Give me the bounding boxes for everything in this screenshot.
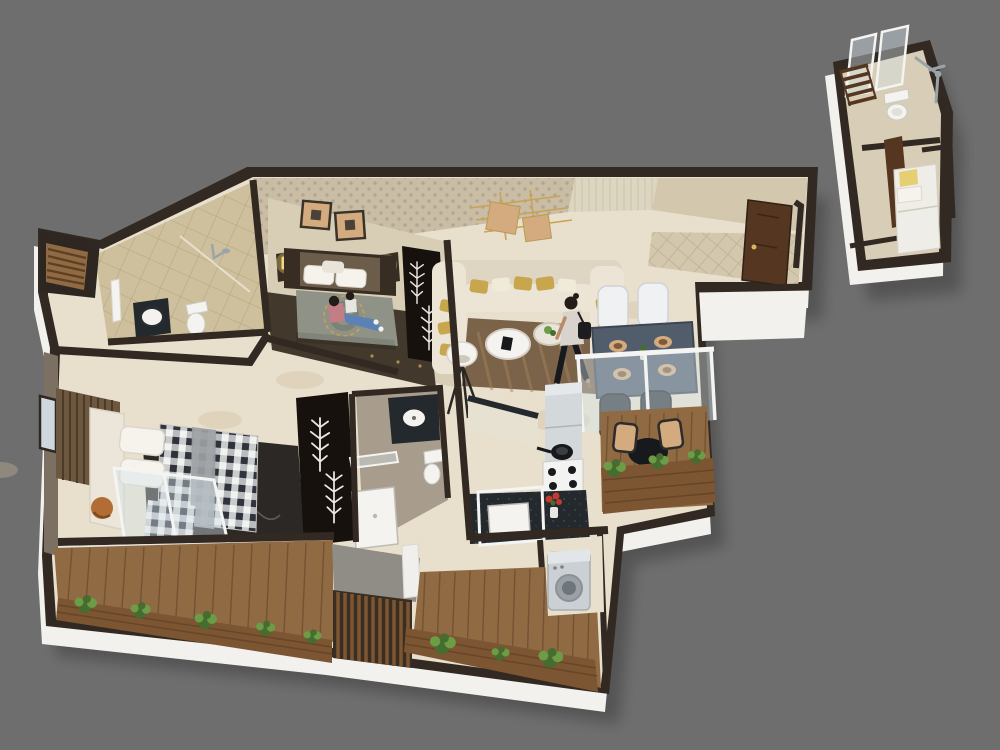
shoulder-bag: [578, 322, 591, 339]
child-torso: [345, 299, 357, 313]
mother-torso: [328, 303, 345, 323]
coffee-table-1: [486, 329, 530, 359]
flower: [556, 499, 562, 505]
burner: [568, 466, 576, 474]
cushion: [535, 276, 555, 291]
floor-plan-render: [0, 0, 1000, 750]
wood-chair: [613, 423, 638, 453]
master-west-wall-face: [44, 352, 58, 556]
burner: [548, 468, 556, 476]
round-washbasin: [141, 308, 163, 326]
entry-door-handle: [752, 245, 757, 250]
pillow-small: [322, 260, 345, 274]
annex-yellow-pillow: [899, 169, 918, 187]
plate-center: [659, 339, 668, 345]
picture-art: [311, 210, 322, 221]
washer-knob: [553, 566, 557, 570]
framed-picture-2: [335, 211, 365, 240]
shower-drain: [373, 514, 377, 518]
marble-blotch: [276, 371, 324, 389]
burner: [569, 480, 577, 488]
washer-knob: [560, 565, 564, 569]
pan-inner: [556, 447, 568, 455]
masterbath-west-wall: [352, 394, 356, 542]
leaf-dot: [396, 360, 399, 363]
mother-head: [329, 296, 339, 306]
sneaker: [378, 326, 383, 331]
living-wall-stripe-pattern: [568, 178, 658, 212]
woman-hair-bun: [573, 293, 579, 299]
cushion: [513, 276, 532, 291]
flower-leaf: [550, 500, 555, 505]
burner: [549, 482, 557, 490]
picture-art: [345, 220, 356, 231]
cushion: [557, 278, 576, 293]
vase-plant: [640, 345, 646, 351]
leaf-dot: [370, 354, 373, 357]
wall-art-square: [486, 202, 520, 235]
dining-chair-white: [598, 286, 628, 330]
master-window: [40, 396, 56, 452]
master-toilet-tank: [424, 449, 443, 464]
leaf-dot: [418, 364, 421, 367]
entry-door: [742, 200, 792, 286]
dining-balcony: [600, 406, 716, 514]
table-plant: [550, 330, 556, 336]
framed-picture-1: [301, 201, 331, 229]
pillow: [119, 426, 165, 456]
wood-chair-seat: [658, 419, 684, 450]
vase: [550, 507, 558, 518]
toilet-bowl: [187, 313, 205, 335]
wall-art-square: [522, 214, 551, 241]
dining-chair-white: [638, 283, 668, 327]
cushion: [491, 277, 510, 292]
wood-chair: [658, 419, 684, 450]
marble-blotch: [198, 411, 242, 429]
sneaker: [373, 319, 378, 324]
annex-white-pillow: [897, 186, 922, 203]
balcony-door: [402, 544, 420, 598]
cushion: [469, 279, 489, 294]
foyer-south-wall-cap: [697, 287, 810, 289]
flower: [553, 493, 560, 500]
utility-washer-niche: [544, 536, 604, 616]
foyer-south-outer-wall: [699, 288, 808, 341]
child-head: [346, 292, 354, 300]
annex-glass-panel: [876, 26, 908, 90]
plate-center: [614, 343, 623, 349]
basin-drain: [412, 416, 416, 420]
washer-door-inner: [562, 581, 576, 595]
master-toilet-bowl: [424, 464, 440, 484]
kitchen-sink: [488, 503, 530, 535]
shower-head: [222, 249, 230, 254]
towel-rail: [111, 279, 121, 322]
wood-chair-seat: [613, 423, 638, 453]
chrome-shower-head: [935, 71, 942, 78]
passage-wardrobe-black: [296, 392, 356, 546]
wardrobe-passage: [296, 392, 356, 546]
annex-toilet-seat: [892, 108, 903, 116]
